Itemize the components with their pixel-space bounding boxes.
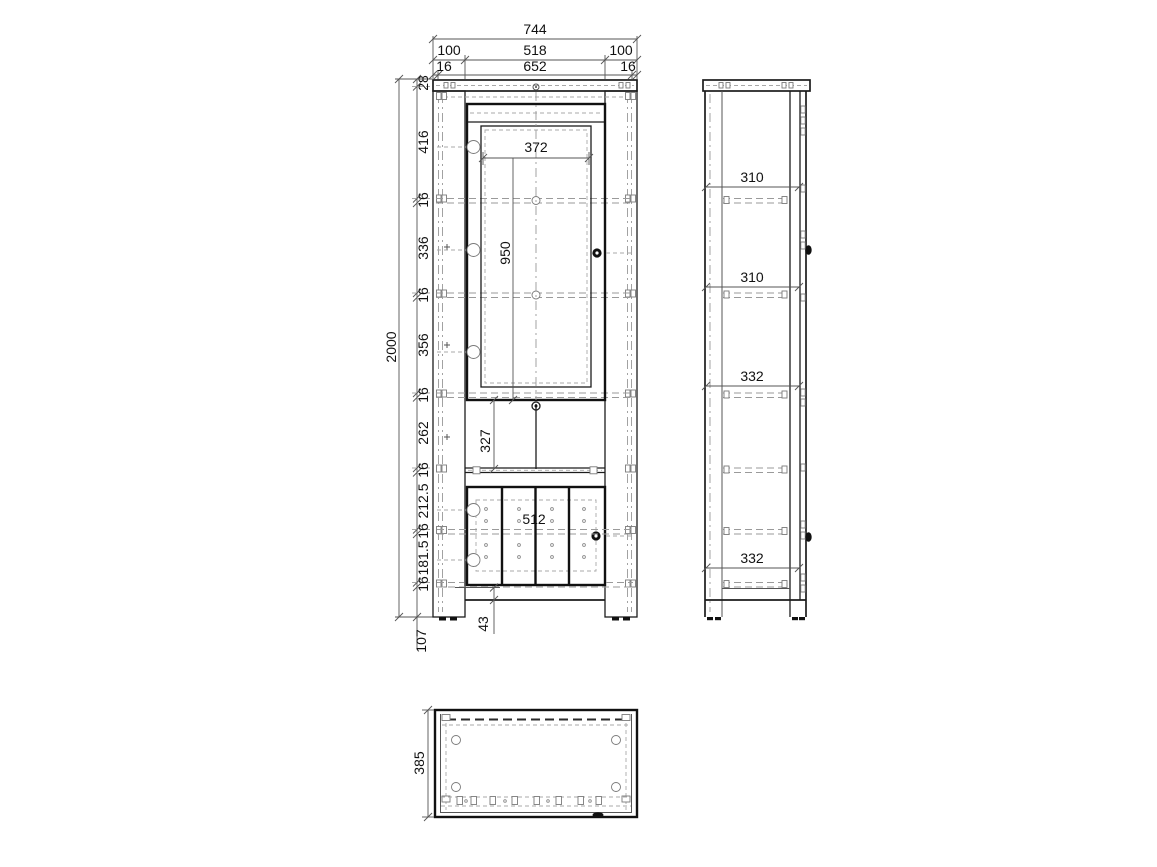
drill-cross-marks xyxy=(444,244,450,440)
side-view: 310 310 332 332 xyxy=(702,80,812,620)
side-gap4-label: 332 xyxy=(740,550,764,566)
seg-416-label: 416 xyxy=(415,130,431,154)
seg-16c-label: 16 xyxy=(415,387,431,403)
lower-door-width-label: 512 xyxy=(522,511,546,527)
front-left-dimensions: 2000 28 416 16 336 16 356 16 262 1 xyxy=(383,75,443,653)
leg-height-label: 107 xyxy=(413,629,429,653)
front-top-dimensions: 744 100 518 100 16 652 16 xyxy=(429,21,641,79)
top-view-knob xyxy=(593,812,604,818)
front-right-post-width-label: 100 xyxy=(609,42,633,58)
side-gap3-label: 332 xyxy=(740,368,764,384)
top-view-hinge-strip xyxy=(441,797,631,807)
seg-181-label: 181.5 xyxy=(415,540,431,575)
top-view: 385 xyxy=(411,706,637,821)
glass-height-label: 950 xyxy=(497,241,513,265)
seg-212-label: 212.5 xyxy=(415,483,431,518)
seg-16b-label: 16 xyxy=(415,287,431,303)
front-view: 744 100 518 100 16 652 16 2000 xyxy=(383,21,641,653)
side-dimensions: 310 310 332 332 xyxy=(702,169,803,572)
side-shelf-lines xyxy=(723,197,789,588)
front-total-width-label: 744 xyxy=(523,21,547,37)
seg-16a-label: 16 xyxy=(415,192,431,208)
seg-16e-label: 16 xyxy=(415,523,431,539)
side-gap2-label: 310 xyxy=(740,269,764,285)
seg-262-label: 262 xyxy=(415,421,431,445)
front-left-post-width-label: 100 xyxy=(437,42,461,58)
side-lower-knob xyxy=(805,532,811,542)
side-upper-knob xyxy=(805,245,811,255)
glass-width-label: 372 xyxy=(524,139,548,155)
depth-label: 385 xyxy=(411,751,427,775)
front-left-panel-thickness-label: 16 xyxy=(436,58,452,74)
seg-16d-label: 16 xyxy=(415,462,431,478)
seg-336-label: 336 xyxy=(415,236,431,260)
front-total-height-label: 2000 xyxy=(383,331,399,362)
front-right-panel-thickness-label: 16 xyxy=(620,58,636,74)
middle-height-label: 327 xyxy=(477,429,493,453)
plinth-height-label: 43 xyxy=(475,616,491,632)
front-inner-width-label: 652 xyxy=(523,58,547,74)
seg-356-label: 356 xyxy=(415,333,431,357)
seg-28-label: 28 xyxy=(415,75,431,91)
side-gap1-label: 310 xyxy=(740,169,764,185)
seg-16f-label: 16 xyxy=(415,576,431,592)
top-view-dimension: 385 xyxy=(411,706,434,821)
lower-door-plank-lines xyxy=(502,488,569,584)
cabinet-technical-drawing: 744 100 518 100 16 652 16 2000 xyxy=(0,0,1157,867)
front-opening-width-label: 518 xyxy=(523,42,547,58)
door-edge-fittings xyxy=(801,106,805,592)
technical-drawing-page: 744 100 518 100 16 652 16 2000 xyxy=(0,0,1157,867)
